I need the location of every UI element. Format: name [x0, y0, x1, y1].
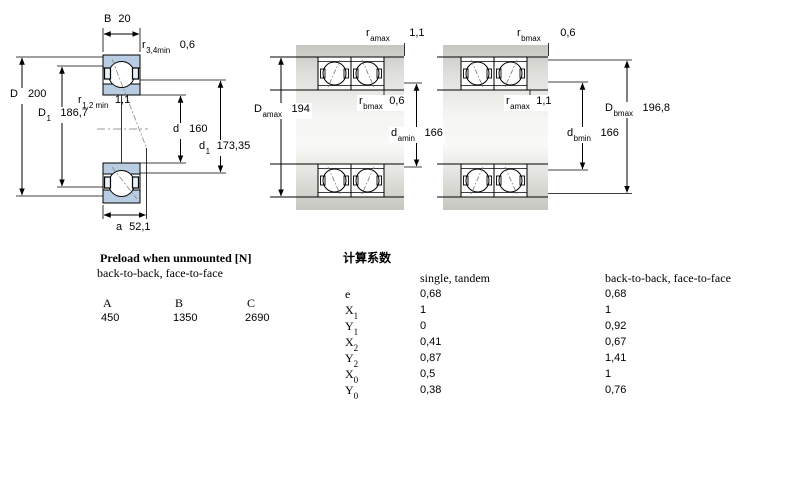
- factor-row-Y0: Y00,380,76: [345, 383, 765, 399]
- preload-col-C: C: [247, 296, 255, 310]
- factor-row-X0: X00,51: [345, 367, 765, 383]
- dim-label-rbmax-top: rbmax0,6: [517, 27, 576, 43]
- dim-label-rbmax-mid: rbmax0,6: [357, 95, 407, 111]
- preload-value-B: 1350: [173, 312, 197, 324]
- preload-value-A: 450: [101, 312, 119, 324]
- preload-value-C: 2690: [245, 312, 269, 324]
- factors-table: e0,680,68 X111 Y100,92 X20,410,67 Y20,87…: [345, 287, 765, 399]
- factor-row-Y1: Y100,92: [345, 319, 765, 335]
- dim-label-d: d160: [171, 123, 209, 139]
- preload-col-A: A: [103, 296, 112, 310]
- dim-label-dbmin: dbmin166: [565, 127, 621, 143]
- bearing-datasheet-page: B20 r3,4min0,6 D200 D1186,7 r1,2 min1,1 …: [0, 0, 800, 500]
- diagram-linework: [0, 0, 800, 500]
- factor-row-Y2: Y20,871,41: [345, 351, 765, 367]
- preload-title: Preload when unmounted [N]: [100, 251, 251, 265]
- dim-label-Dbmax: Dbmax196,8: [603, 102, 672, 118]
- dim-label-Damax: Damax194: [252, 103, 312, 119]
- dim-label-damin: damin166: [389, 127, 445, 143]
- dim-label-a: a52,1: [116, 221, 151, 237]
- dim-label-r12min: r1,2 min1,1: [78, 94, 130, 110]
- preload-col-B: B: [175, 296, 183, 310]
- preload-subtitle: back-to-back, face-to-face: [97, 266, 223, 280]
- dim-label-ramax-top: ramax1,1: [366, 27, 425, 43]
- dim-label-ramax-mid: ramax1,1: [504, 95, 554, 111]
- dim-label-D: D200: [8, 88, 48, 104]
- dim-label-B: B20: [104, 13, 131, 29]
- factor-row-X1: X111: [345, 303, 765, 319]
- factors-col2-header: back-to-back, face-to-face: [605, 271, 731, 285]
- factors-title: 计算系数: [343, 249, 391, 266]
- factor-row-X2: X20,410,67: [345, 335, 765, 351]
- dim-label-r34min: r3,4min0,6: [142, 39, 195, 55]
- dim-label-d1: d1173,35: [197, 140, 252, 156]
- factors-col1-header: single, tandem: [420, 271, 490, 285]
- factor-row-e: e0,680,68: [345, 287, 765, 303]
